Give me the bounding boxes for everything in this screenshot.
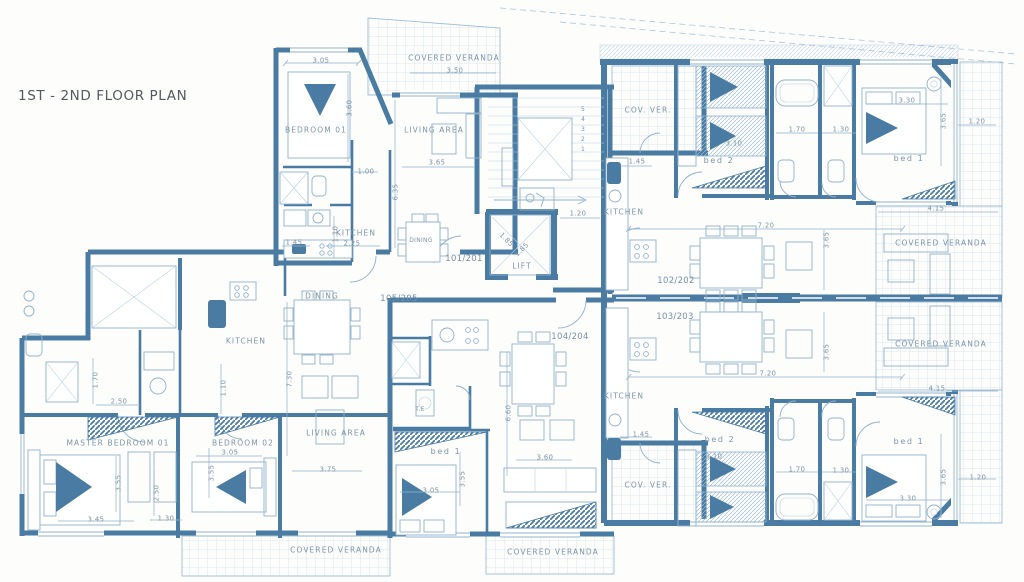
dim-bed1-102-h: 3.65 bbox=[941, 113, 948, 130]
room-label-master-105: MASTER BEDROOM 01 bbox=[66, 439, 169, 447]
room-label-kitchen-101: KITCHEN bbox=[336, 229, 376, 237]
dim-master-h: 3.55 bbox=[116, 475, 123, 492]
veranda-label-104: COVERED VERANDA bbox=[507, 548, 599, 556]
covver-label-103: COV. VER. bbox=[624, 481, 671, 489]
covver-label-102: COV. VER. bbox=[624, 106, 671, 114]
veranda-label-102: COVERED VERANDA bbox=[895, 239, 987, 247]
dim-bath103-a: 1.70 bbox=[789, 467, 806, 474]
dim-bed2-103: 3.10 bbox=[706, 454, 723, 461]
dim-living101-h: 6.35 bbox=[393, 184, 400, 201]
dim-bed1-104-h: 3.55 bbox=[460, 471, 467, 488]
room-label-living-105: LIVING AREA bbox=[306, 429, 366, 437]
dim-kitchen101-w: 2.25 bbox=[344, 241, 361, 248]
dim-bed2-102: 3.10 bbox=[726, 141, 743, 148]
dim-bedroom02-w: 3.05 bbox=[222, 450, 239, 457]
dim-bedroom01-h: 3.60 bbox=[347, 100, 354, 117]
dim-living102-w: 7.20 bbox=[758, 223, 775, 230]
dim-living105-w: 3.75 bbox=[320, 467, 337, 474]
room-label-te-104: T.E bbox=[415, 407, 425, 413]
dim-living101-w: 3.65 bbox=[429, 160, 446, 167]
dim-living105-h: 7.30 bbox=[287, 371, 294, 388]
dim-bedroom02-h: 3.55 bbox=[209, 465, 216, 482]
stair-step-numbers: 5 4 3 2 1 bbox=[581, 106, 585, 153]
veranda-label-103: COVERED VERANDA bbox=[895, 340, 987, 348]
stair-step: 4 bbox=[581, 116, 585, 123]
dim-wc-105: 1.30 bbox=[158, 516, 175, 523]
floor-plan-page: 1ST - 2ND FLOOR PLAN LIFT 1.85 1.85 1.20… bbox=[0, 0, 1024, 582]
dim-hall-105-w: 2.50 bbox=[111, 399, 128, 406]
lift-label: LIFT bbox=[512, 262, 532, 270]
dim-bed1-102-w: 3.30 bbox=[899, 98, 916, 105]
dim-bath102-a: 1.70 bbox=[789, 127, 806, 134]
stair-step: 1 bbox=[581, 146, 585, 153]
dim-bed1-103-w: 3.30 bbox=[900, 496, 917, 503]
veranda-label-101: COVERED VERANDA bbox=[408, 54, 500, 62]
apartment-number-104: 104/204 bbox=[551, 333, 588, 342]
dim-bed1-103-h: 3.65 bbox=[941, 469, 948, 486]
dim-living102-h: 3.65 bbox=[824, 232, 831, 249]
room-label-bed1-102: bed 1 bbox=[894, 155, 925, 163]
stair-step: 5 bbox=[581, 106, 585, 113]
dim-pantry-105: 1.10 bbox=[221, 380, 228, 397]
stair-step: 3 bbox=[581, 126, 585, 133]
staircase bbox=[488, 98, 604, 210]
dim-unit-104: 3.60 bbox=[537, 455, 554, 462]
dim-corridor-105: 2.50 bbox=[154, 485, 161, 502]
dim-kitchen102: 1.45 bbox=[629, 159, 646, 166]
dim-master-w: 3.45 bbox=[88, 517, 105, 524]
room-label-bed1-104: bed 1 bbox=[431, 448, 462, 456]
room-label-bedroom01: BEDROOM 01 bbox=[285, 126, 347, 134]
apartment-number-105: 105/205 bbox=[380, 295, 417, 304]
room-label-living-101: LIVING AREA bbox=[404, 126, 464, 134]
veranda-dim-101: 3.50 bbox=[447, 68, 464, 75]
lobby-dim: 1.20 bbox=[570, 211, 587, 218]
dim-balcony-102: 1.20 bbox=[969, 119, 986, 126]
dim-kitchen101-d: 1.45 bbox=[286, 240, 303, 247]
room-label-kitchen-105: KITCHEN bbox=[226, 337, 266, 345]
room-label-kitchen-103: KITCHEN bbox=[604, 392, 644, 400]
dim-bed1-104-w: 3.05 bbox=[423, 488, 440, 495]
furniture-apt-105 bbox=[24, 266, 360, 530]
dim-kitchen103: 1.45 bbox=[633, 432, 650, 439]
dim-hall-101: 1.00 bbox=[358, 169, 375, 176]
room-label-bed2-103: bed 2 bbox=[705, 436, 736, 444]
room-label-dining-105: DINING bbox=[305, 292, 339, 300]
dim-living103-h: 3.65 bbox=[824, 344, 831, 361]
dim-bath103-b: 1.30 bbox=[833, 468, 850, 475]
dim-kitchen101-h: 1.10 bbox=[333, 226, 340, 243]
dim-bath102-b: 1.30 bbox=[833, 127, 850, 134]
dim-balcony-103: 1.20 bbox=[970, 475, 987, 482]
apartment-number-103: 103/203 bbox=[656, 313, 693, 322]
apartment-number-101: 101/201 bbox=[445, 255, 482, 264]
veranda-label-105: COVERED VERANDA bbox=[290, 546, 382, 554]
apartment-number-102: 102/202 bbox=[657, 277, 694, 286]
dim-hall-105-h: 1.70 bbox=[93, 372, 100, 389]
dim-bedroom01-w: 3.05 bbox=[313, 58, 330, 65]
room-label-kitchen-102: KITCHEN bbox=[604, 208, 644, 216]
dim-veranda102-w: 4.15 bbox=[928, 206, 945, 213]
stair-step: 2 bbox=[581, 136, 585, 143]
room-label-bed1-103: bed 1 bbox=[894, 438, 925, 446]
dim-living103-w: 7.20 bbox=[760, 371, 777, 378]
dim-living104-h: 6.60 bbox=[506, 405, 513, 422]
room-label-bed2-102: bed 2 bbox=[704, 157, 735, 165]
room-label-bedroom02: BEDROOM 02 bbox=[212, 439, 274, 447]
page-title: 1ST - 2ND FLOOR PLAN bbox=[18, 88, 187, 104]
dim-veranda103-w: 4.15 bbox=[929, 386, 946, 393]
room-label-dining-101: DINING bbox=[409, 238, 433, 244]
